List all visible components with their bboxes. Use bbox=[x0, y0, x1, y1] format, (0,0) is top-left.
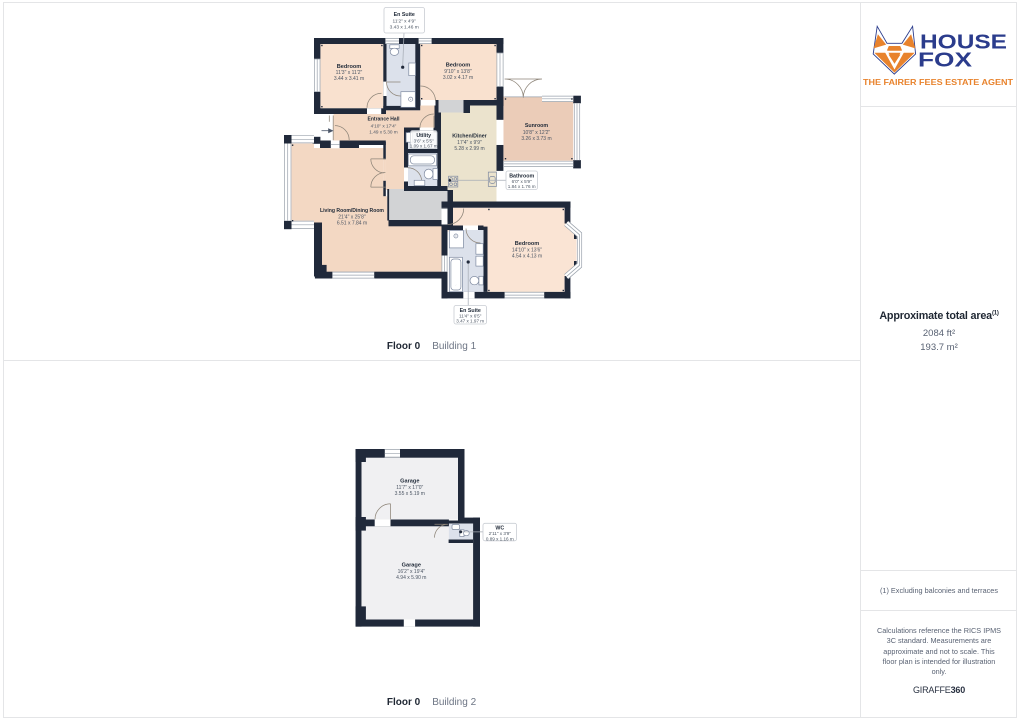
svg-text:4.54 x 4.13 m: 4.54 x 4.13 m bbox=[512, 254, 542, 260]
svg-text:1.09 x 1.67 m: 1.09 x 1.67 m bbox=[410, 144, 438, 149]
svg-text:6.51 x 7.84 m: 6.51 x 7.84 m bbox=[337, 221, 367, 227]
svg-text:THE FAIRER FEES ESTATE AGENT: THE FAIRER FEES ESTATE AGENT bbox=[863, 78, 1013, 87]
svg-text:0.89 x 1.16 m: 0.89 x 1.16 m bbox=[486, 536, 514, 541]
svg-text:3.02 x 4.17 m: 3.02 x 4.17 m bbox=[443, 75, 473, 81]
svg-text:Bedroom: Bedroom bbox=[515, 241, 540, 247]
svg-text:Living Room/Dining Room: Living Room/Dining Room bbox=[320, 208, 384, 214]
svg-text:4'10" x 17'4": 4'10" x 17'4" bbox=[371, 123, 397, 128]
svg-text:3.44 x 3.41 m: 3.44 x 3.41 m bbox=[334, 76, 364, 82]
svg-text:3.26 x 3.73 m: 3.26 x 3.73 m bbox=[521, 136, 551, 142]
svg-text:Entrance Hall: Entrance Hall bbox=[368, 117, 401, 123]
svg-text:5.28 x 2.99 m: 5.28 x 2.99 m bbox=[454, 146, 484, 152]
svg-text:3.47 x 1.97 m: 3.47 x 1.97 m bbox=[456, 319, 484, 324]
svg-text:3.43 x 1.46 m: 3.43 x 1.46 m bbox=[390, 25, 419, 31]
svg-text:Kitchen/Diner: Kitchen/Diner bbox=[452, 134, 486, 140]
svg-text:FOX: FOX bbox=[918, 49, 972, 72]
svg-text:Garage: Garage bbox=[402, 563, 421, 569]
svg-text:Sunroom: Sunroom bbox=[525, 123, 549, 129]
svg-text:1.84 x 1.76 m: 1.84 x 1.76 m bbox=[508, 184, 536, 189]
svg-text:11'2" x 4'9": 11'2" x 4'9" bbox=[393, 18, 417, 24]
svg-text:Garage: Garage bbox=[400, 479, 419, 485]
svg-text:4.94 x 5.90 m: 4.94 x 5.90 m bbox=[396, 575, 426, 581]
svg-text:Bedroom: Bedroom bbox=[446, 63, 471, 69]
svg-text:En Suite: En Suite bbox=[394, 12, 415, 18]
svg-text:Bedroom: Bedroom bbox=[337, 64, 362, 70]
svg-text:3.55 x 5.19 m: 3.55 x 5.19 m bbox=[395, 491, 425, 497]
svg-text:1.49 x 5.30 m: 1.49 x 5.30 m bbox=[369, 129, 397, 134]
